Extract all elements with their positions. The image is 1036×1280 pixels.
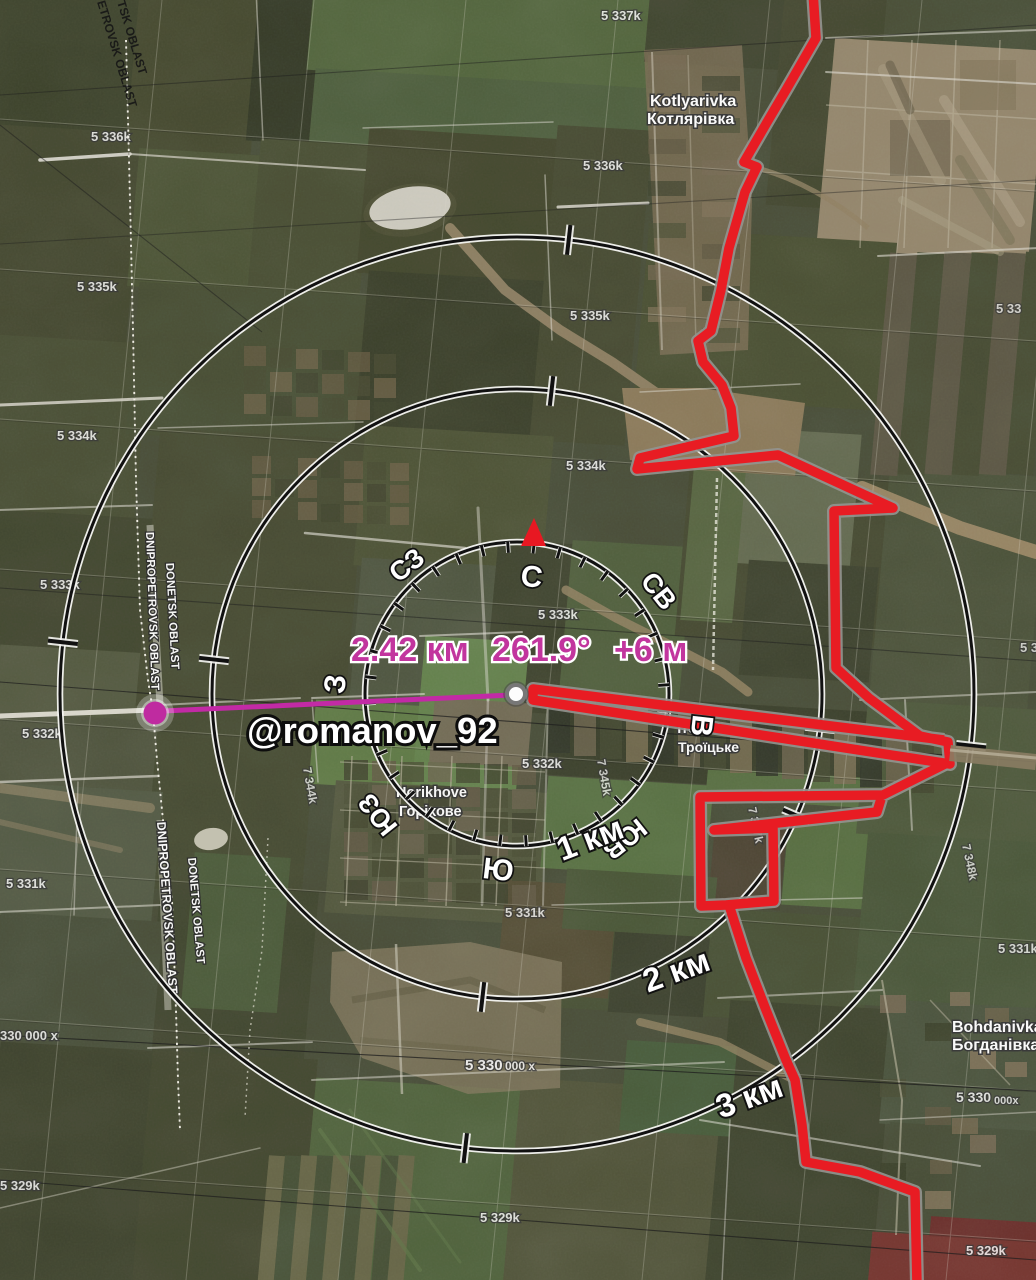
svg-text:5 336k: 5 336k — [583, 158, 624, 173]
svg-text:5 33: 5 33 — [996, 301, 1021, 316]
svg-text:5 329k: 5 329k — [480, 1210, 521, 1225]
svg-text:330 000 x: 330 000 x — [0, 1028, 59, 1043]
svg-text:5 334k: 5 334k — [57, 428, 98, 443]
svg-text:5 334k: 5 334k — [566, 458, 607, 473]
svg-text:Богданівка: Богданівка — [952, 1037, 1036, 1054]
svg-text:Ю: Ю — [481, 852, 515, 888]
svg-text:С: С — [519, 560, 544, 595]
svg-text:5 329k: 5 329k — [966, 1243, 1007, 1258]
svg-text:5 332k: 5 332k — [522, 756, 563, 771]
svg-text:Kotlyarivka: Kotlyarivka — [650, 93, 736, 110]
svg-text:З: З — [318, 673, 353, 695]
svg-text:5 331k: 5 331k — [6, 876, 47, 891]
svg-text:261.9°: 261.9° — [492, 631, 591, 669]
svg-text:2.42 км: 2.42 км — [351, 631, 469, 669]
svg-text:+6 м: +6 м — [614, 631, 687, 669]
svg-text:Bohdanivka: Bohdanivka — [952, 1019, 1036, 1036]
svg-text:000x: 000x — [994, 1095, 1019, 1107]
svg-text:5 3: 5 3 — [1020, 640, 1036, 655]
svg-text:В: В — [684, 713, 719, 738]
svg-text:Троїцьке: Троїцьке — [678, 739, 739, 755]
svg-text:5 333k: 5 333k — [538, 607, 579, 622]
svg-text:Котлярівка: Котлярівка — [647, 111, 734, 128]
svg-text:5 331k: 5 331k — [505, 905, 546, 920]
svg-text:5 337k: 5 337k — [601, 8, 642, 23]
svg-text:@romanov_92: @romanov_92 — [247, 710, 498, 751]
svg-text:5 335k: 5 335k — [77, 279, 118, 294]
svg-text:5 330: 5 330 — [465, 1057, 503, 1074]
svg-text:000 x: 000 x — [505, 1059, 535, 1073]
svg-text:5 335k: 5 335k — [570, 308, 611, 323]
svg-text:5 329k: 5 329k — [0, 1178, 41, 1193]
svg-text:5 332k: 5 332k — [22, 726, 63, 741]
svg-text:5 331k: 5 331k — [998, 941, 1036, 956]
svg-text:5 336k: 5 336k — [91, 129, 132, 144]
svg-text:5 330: 5 330 — [956, 1089, 991, 1105]
